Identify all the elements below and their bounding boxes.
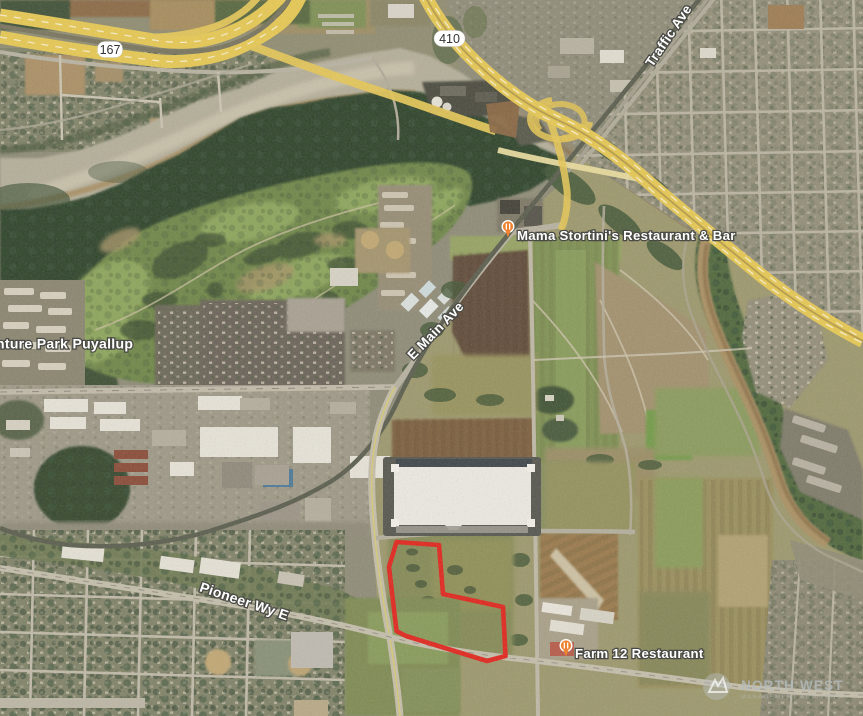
svg-text:410: 410 [439, 32, 460, 46]
svg-text:Mama Stortini's Restaurant & B: Mama Stortini's Restaurant & Bar [517, 228, 736, 243]
svg-text:167: 167 [100, 43, 121, 57]
svg-text:MANAGEMENT ADVISORS: MANAGEMENT ADVISORS [741, 695, 842, 701]
svg-text:nture Park Puyallup: nture Park Puyallup [0, 336, 133, 352]
svg-text:NORTH WEST: NORTH WEST [741, 678, 844, 693]
svg-text:Farm 12 Restaurant: Farm 12 Restaurant [575, 646, 704, 661]
